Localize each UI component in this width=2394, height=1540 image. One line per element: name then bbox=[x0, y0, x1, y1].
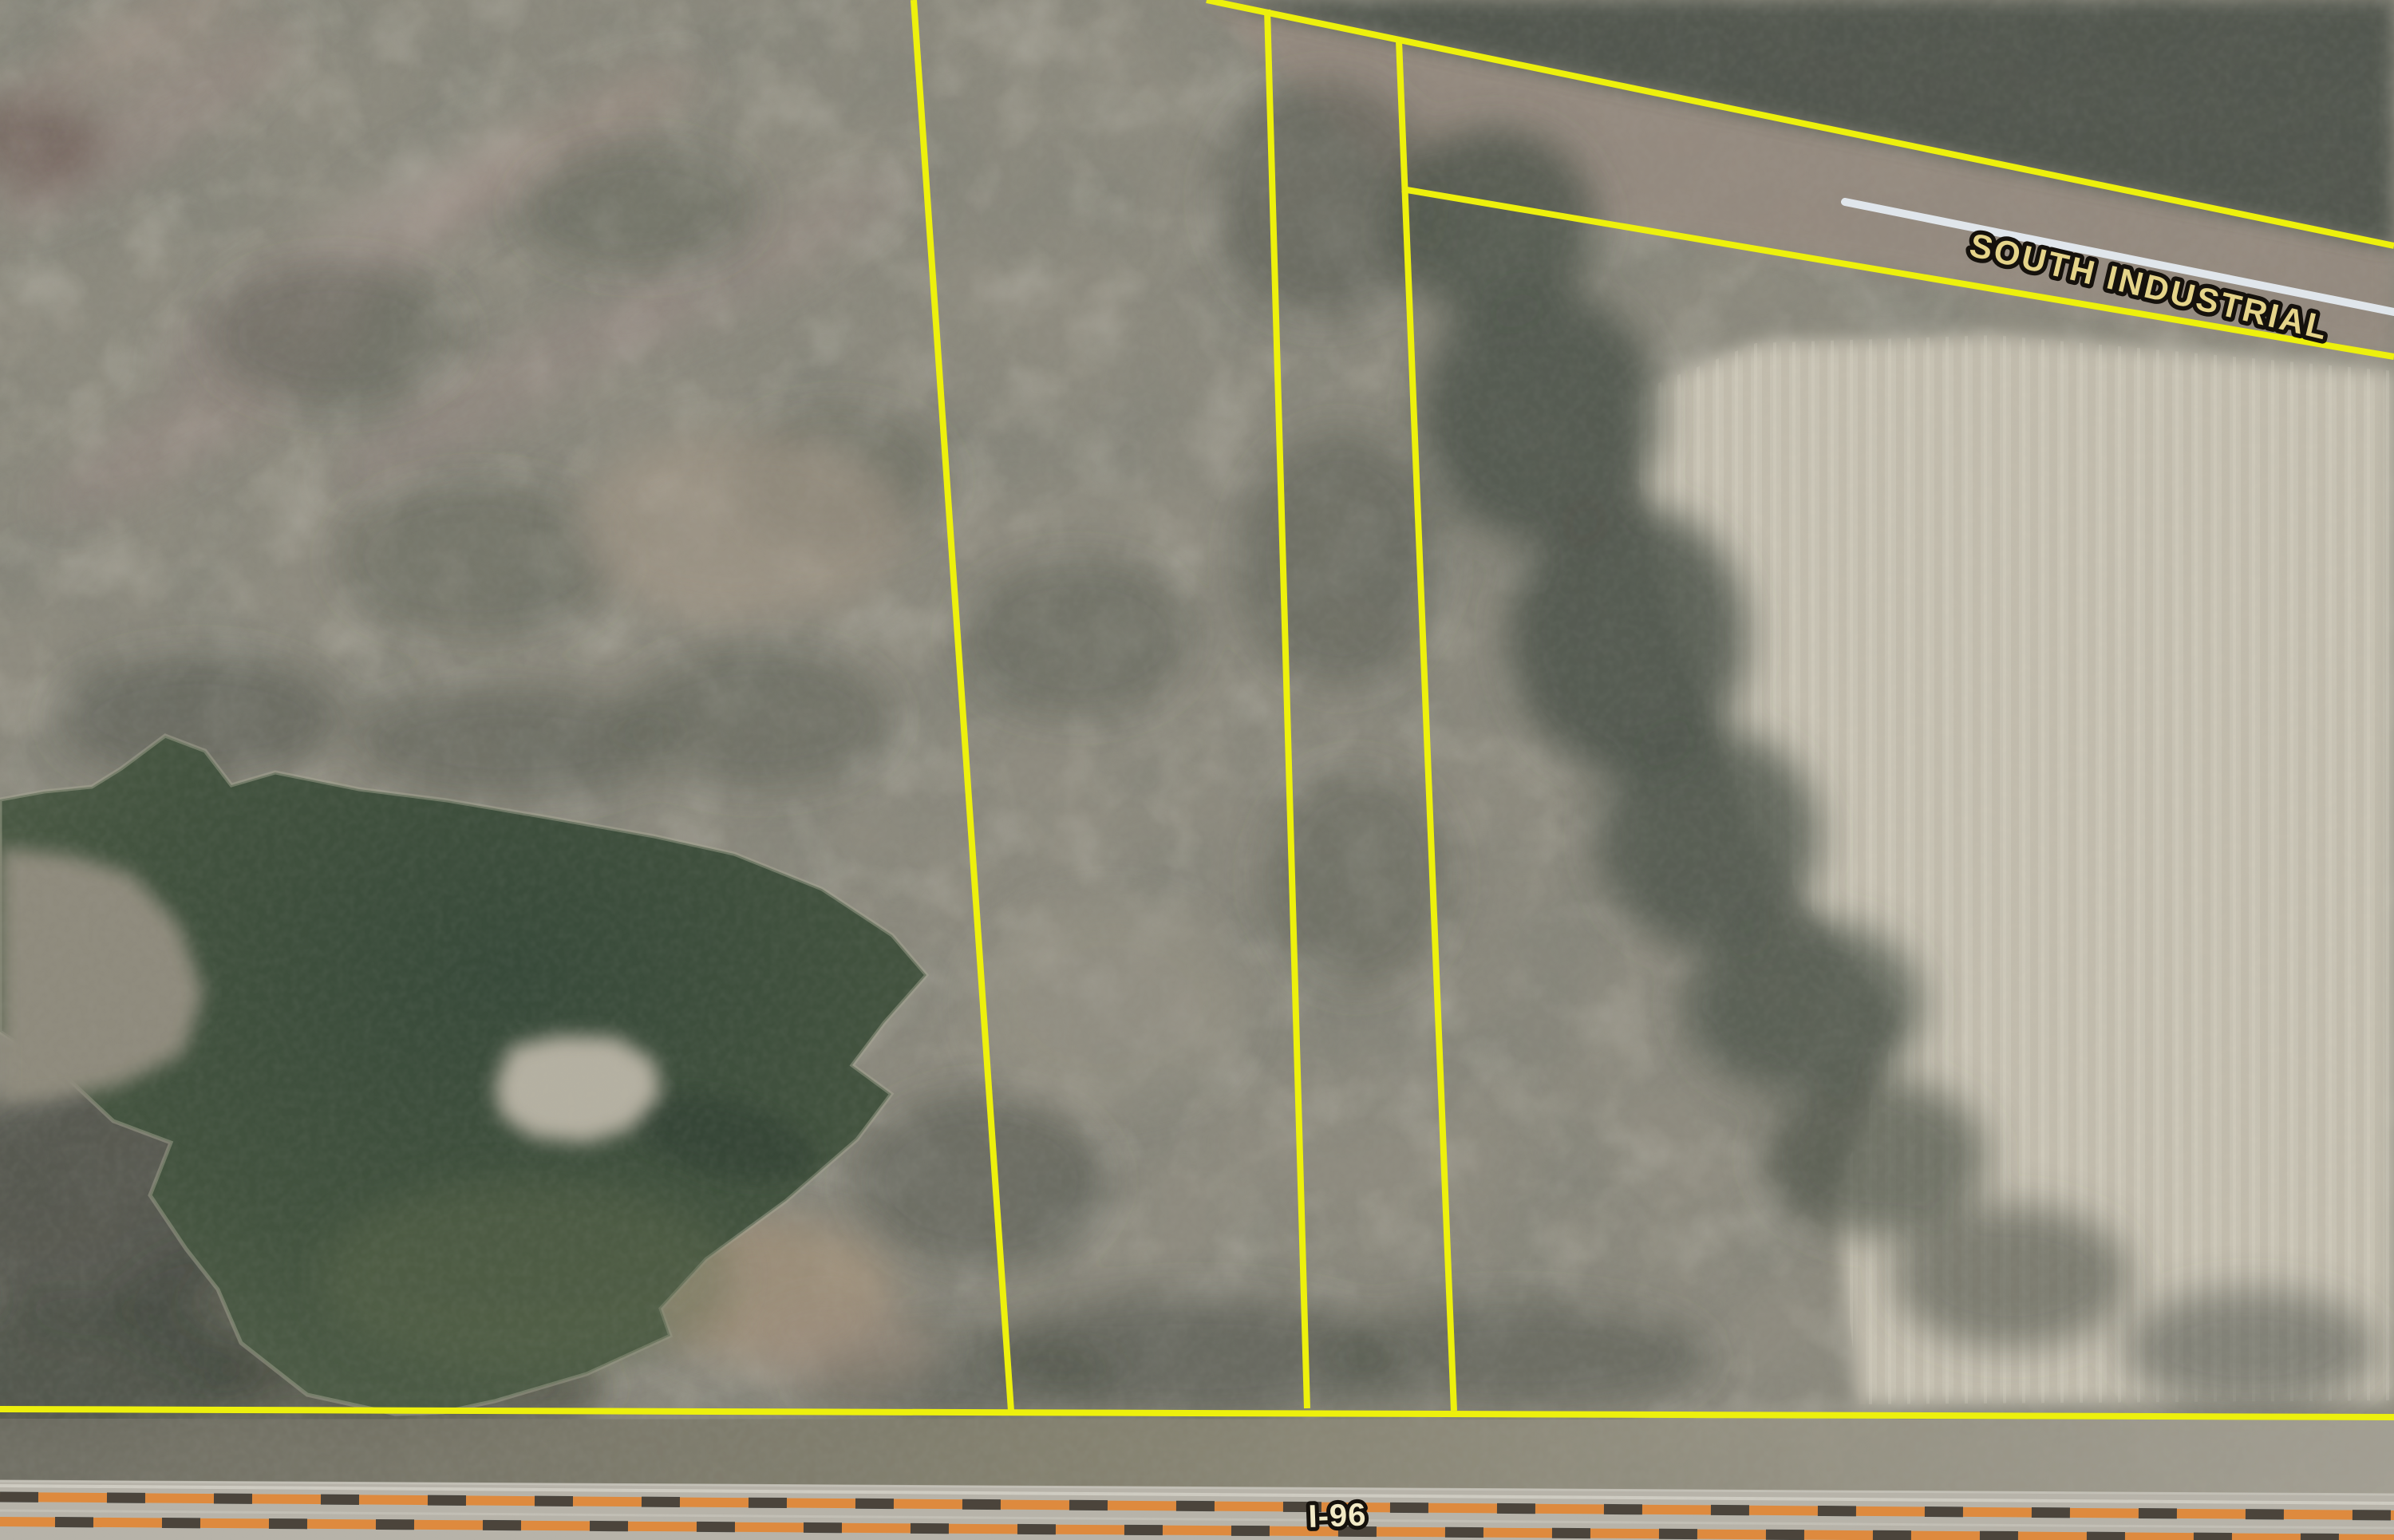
highway-name-label: I-96 bbox=[1308, 1497, 1367, 1534]
aerial-map: SOUTH INDUSTRIAL I-96 bbox=[0, 0, 2394, 1540]
terrain-grain bbox=[0, 0, 2394, 1540]
map-canvas: SOUTH INDUSTRIAL I-96 bbox=[0, 0, 2394, 1540]
